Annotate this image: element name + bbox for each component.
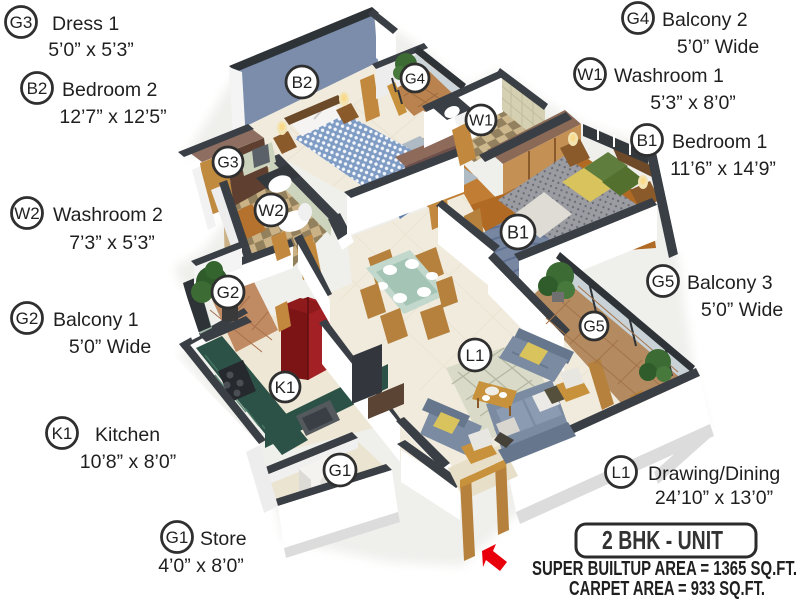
svg-text:G4: G4 <box>627 9 650 28</box>
svg-text:12’7” x 12’5”: 12’7” x 12’5” <box>59 106 166 128</box>
svg-text:L1: L1 <box>466 346 485 365</box>
svg-text:Store: Store <box>200 528 247 550</box>
svg-text:G2: G2 <box>16 309 39 328</box>
svg-text:W2: W2 <box>258 201 284 220</box>
svg-text:G1: G1 <box>166 528 189 547</box>
svg-text:5’0” Wide: 5’0” Wide <box>701 299 783 321</box>
svg-text:Balcony 2: Balcony 2 <box>662 9 748 31</box>
svg-text:K1: K1 <box>275 378 296 397</box>
svg-text:G3: G3 <box>217 155 238 172</box>
svg-text:24’10” x 13’0”: 24’10” x 13’0” <box>655 487 773 509</box>
svg-text:B2: B2 <box>27 79 48 98</box>
svg-text:L1: L1 <box>612 463 631 482</box>
svg-text:5’0” Wide: 5’0” Wide <box>677 36 759 58</box>
svg-text:7’3” x 5’3”: 7’3” x 5’3” <box>69 232 155 254</box>
svg-text:W1: W1 <box>469 113 493 130</box>
svg-text:W2: W2 <box>14 204 40 223</box>
svg-text:SUPER BUILTUP AREA = 1365 SQ.F: SUPER BUILTUP AREA = 1365 SQ.FT. <box>532 558 797 580</box>
svg-text:5’0” x 5’3”: 5’0” x 5’3” <box>48 39 134 61</box>
svg-text:Bedroom 1: Bedroom 1 <box>672 131 767 153</box>
svg-text:B2: B2 <box>292 73 313 92</box>
svg-text:B1: B1 <box>507 222 529 242</box>
svg-text:Drawing/Dining: Drawing/Dining <box>648 463 780 485</box>
svg-text:G5: G5 <box>583 319 604 336</box>
svg-text:G2: G2 <box>217 283 240 302</box>
svg-text:G4: G4 <box>405 70 425 87</box>
svg-text:10’8” x 8’0”: 10’8” x 8’0” <box>80 451 176 473</box>
svg-text:CARPET AREA = 933 SQ.FT.: CARPET AREA = 933 SQ.FT. <box>569 578 765 600</box>
svg-text:Kitchen: Kitchen <box>95 424 160 446</box>
svg-text:B1: B1 <box>637 131 658 150</box>
svg-text:G5: G5 <box>652 272 675 291</box>
svg-text:2 BHK - UNIT: 2 BHK - UNIT <box>602 525 723 555</box>
svg-text:Dress 1: Dress 1 <box>52 13 119 35</box>
svg-text:5’0” Wide: 5’0” Wide <box>69 336 151 358</box>
svg-text:K1: K1 <box>52 424 73 443</box>
svg-text:Washroom 2: Washroom 2 <box>53 204 163 226</box>
svg-text:5’3” x 8’0”: 5’3” x 8’0” <box>650 92 736 114</box>
svg-text:4’0” x 8’0”: 4’0” x 8’0” <box>158 555 244 577</box>
svg-text:G3: G3 <box>10 13 33 32</box>
svg-text:Balcony 3: Balcony 3 <box>687 272 773 294</box>
svg-text:W1: W1 <box>577 65 603 84</box>
svg-text:Washroom 1: Washroom 1 <box>614 65 724 87</box>
svg-text:Balcony 1: Balcony 1 <box>53 309 139 331</box>
svg-text:11’6” x 14’9”: 11’6” x 14’9” <box>670 158 776 180</box>
svg-text:G1: G1 <box>329 461 352 480</box>
svg-text:Bedroom 2: Bedroom 2 <box>62 79 157 101</box>
